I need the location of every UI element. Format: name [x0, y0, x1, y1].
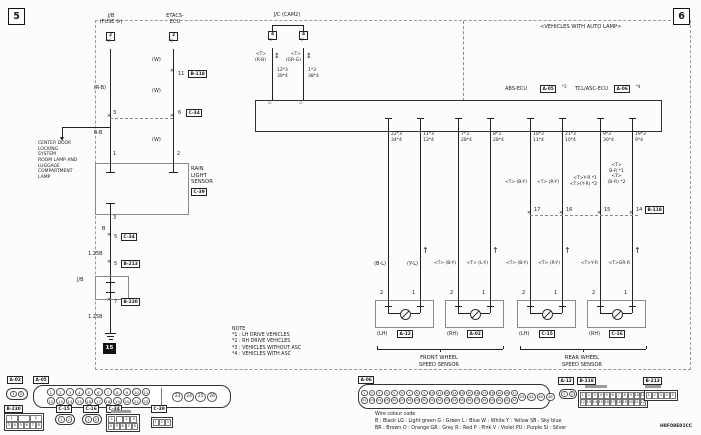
terminal [106, 292, 115, 293]
sensor-position: (RH) [589, 331, 600, 337]
pin: 17 [610, 399, 616, 406]
wire [110, 49, 111, 163]
pin: 29 [414, 397, 421, 404]
junction-pin: 5 [114, 234, 117, 240]
terminal [106, 282, 115, 283]
branch-destination: CENTER DOOR LOCKING SYSTEM ROOM LAMP AND… [38, 141, 92, 180]
terminal [600, 118, 601, 130]
pin-rows: 1234567891011 1213141516171819202122 [47, 388, 151, 405]
legend-line-1: B : Black LG : Light green G : Green L :… [375, 419, 561, 425]
pin: 3 [66, 388, 75, 396]
wire-color-label: (W) [152, 88, 161, 94]
terminal [420, 300, 421, 313]
pin: 20 [504, 390, 511, 397]
pin: 12 [47, 397, 56, 405]
terminal [530, 300, 531, 313]
junction-mark: ✕ [107, 299, 111, 304]
pin-row: 345678 [6, 422, 42, 429]
pin: 6 [399, 390, 406, 397]
pin-row: 1213141516171819202122 [580, 399, 646, 406]
connector-c34: 123 45678 [106, 414, 140, 432]
junction-mark: ✕ [559, 212, 563, 217]
pin: 11 [142, 388, 151, 396]
wire-color-label: <T> B-R *1 <T> (B-R) *2 [603, 163, 630, 186]
pin: 22 [142, 397, 151, 405]
connector-triangle-icon: ▽ [170, 40, 173, 45]
pin: 15 [466, 390, 473, 397]
footnote-ref: *3 [562, 84, 567, 89]
wire-color-label: R-B [94, 130, 102, 136]
junction-pin: 17 [534, 207, 540, 213]
pin: 19 [622, 399, 628, 406]
pin: 6 [94, 388, 103, 396]
rear-sensor-group-label: REAR WHEEL SPEED SENSOR [548, 355, 616, 368]
pin: 17 [481, 390, 488, 397]
ecu-pin-numbers: 9*3 30*4 [603, 132, 614, 143]
connector-label: C-16 [83, 405, 99, 413]
ground-icon [105, 333, 116, 334]
abs-ecu-label: ABS-ECU [505, 86, 527, 92]
connector-color-mark [111, 410, 131, 413]
pin: 1 [58, 416, 65, 423]
wire [490, 130, 491, 300]
arrow-up-icon: ↑ [422, 247, 429, 255]
pin: 33 [444, 397, 451, 404]
pin: 30 [421, 397, 428, 404]
coil-icon [400, 309, 411, 320]
connector-a12: 12 [559, 389, 577, 399]
wire-color-label: (W) [152, 137, 161, 143]
pin: 3 [165, 419, 171, 426]
ecu-pin-numbers: 21*3 10*4 [565, 132, 576, 143]
ground-icon [109, 339, 113, 340]
branch-wire [62, 127, 63, 137]
pin [116, 416, 123, 423]
wire-color-label: <T> (B-Y) [496, 180, 527, 186]
pin: 26 [207, 392, 218, 402]
pin: 20 [123, 397, 132, 405]
pin: 37 [474, 397, 481, 404]
wire [272, 48, 273, 100]
pin: 4 [12, 422, 18, 429]
pin: 21 [634, 399, 640, 406]
junction-pin: 16 [566, 207, 572, 213]
wire [420, 130, 421, 300]
pin: 1 [646, 392, 652, 399]
pin: 10 [634, 392, 640, 399]
wiring-diagram-sheet: 5 6 <VEHICLES WITH AUTO LAMP> J/B (FUSE … [0, 0, 701, 435]
pin: 14 [66, 397, 75, 405]
wire-color-label: 1.25B [88, 251, 103, 257]
terminal [458, 300, 459, 313]
pin: 12 [444, 390, 451, 397]
connector-divider [161, 388, 162, 405]
pin: 18 [616, 399, 622, 406]
terminal [169, 172, 178, 173]
wire-color-label: <T> (GR-G) [281, 52, 301, 63]
connector-ref: A-05 [540, 85, 556, 93]
terminal [458, 118, 459, 130]
terminal [562, 118, 563, 130]
pin: 11 [436, 390, 443, 397]
pin: 19 [496, 390, 503, 397]
connector-ref: B-118 [188, 70, 207, 78]
wire-color-label: <T>Y-R *1 <T>(Y-R) *2 [560, 176, 597, 187]
junction-mark: ✕ [170, 115, 174, 120]
pin: 34 [451, 397, 458, 404]
group-brace [440, 349, 441, 352]
pin: 24 [184, 392, 195, 402]
terminal [490, 300, 491, 313]
connector-c16: 12 [82, 414, 102, 425]
junction-pin: 14 [636, 207, 642, 213]
arrow-updown-icon: ↕ [274, 53, 280, 60]
pin: 4 [664, 392, 670, 399]
pin: 5 [18, 422, 24, 429]
pin: 44 [527, 393, 536, 401]
pin: 24 [376, 397, 383, 404]
connector-label: C-39 [151, 405, 167, 413]
pin: 1 [561, 391, 568, 398]
pin: 19 [113, 397, 122, 405]
connector-triangle-icon: ▽ [269, 39, 272, 44]
pin: 4 [598, 392, 604, 399]
pin: 10 [132, 388, 141, 396]
dashed-link [530, 215, 638, 216]
sensor-pin: 1 [113, 151, 116, 157]
pin: 23 [172, 392, 183, 402]
ecu-pin-numbers: 8*3 28*4 [493, 132, 504, 143]
pin: 13 [56, 397, 65, 405]
terminal [562, 300, 563, 313]
terminal [110, 163, 111, 172]
pin: 7 [30, 422, 36, 429]
pin: 3 [658, 392, 664, 399]
junction-pin: 15 [604, 207, 610, 213]
wire-color-label: (B-L) [352, 261, 386, 267]
pin: 2 [586, 392, 592, 399]
connector-c39: 123 [151, 417, 173, 428]
sensor-pin: 2 [380, 290, 383, 296]
connector-label: A-12 [558, 377, 574, 385]
pin: 16 [474, 390, 481, 397]
pin: 9 [421, 390, 428, 397]
pin-row: 2223242526272829303132333435363738394041… [361, 397, 518, 404]
wire-color-label: <T> (L-Y) [454, 261, 488, 267]
pin: 2 [123, 416, 130, 423]
junction-pin: 7 [114, 299, 117, 305]
ecu-pin-numbers: 11*3 13*4 [423, 132, 434, 143]
pin: 22 [361, 397, 368, 404]
wire-color-label: (R-B) [82, 85, 106, 91]
sensor-pin: 2 [522, 290, 525, 296]
pin: 5 [114, 423, 120, 430]
terminal [420, 118, 421, 130]
note-block: NOTE *1 : LH DRIVE VEHICLES *2 : RH DRIV… [232, 327, 301, 358]
etacs-title: ETACS- ECU [160, 13, 190, 26]
pin: 31 [429, 397, 436, 404]
pin: 2 [30, 415, 42, 422]
connector-label: A-02 [7, 376, 23, 384]
wire-color-label: <T> (B-Y) [422, 261, 456, 267]
terminal [106, 172, 115, 173]
pin: 8 [113, 388, 122, 396]
section-number-left: 5 [8, 8, 25, 25]
pin: 4 [75, 388, 84, 396]
wire [388, 130, 389, 300]
connector-ref: B-230 [121, 298, 140, 306]
ground-icon [107, 336, 114, 337]
junction-pin: 5 [114, 261, 117, 267]
pin: 1 [85, 416, 92, 423]
pin: 13 [586, 399, 592, 406]
ecu-pin-numbers: 22*3 34*4 [391, 132, 402, 143]
sheet-code: H8F08E01CC [660, 424, 692, 430]
connector-a06: 123456789101112131415161718192021 222324… [358, 384, 550, 409]
connector-ref: C-39 [191, 188, 207, 196]
pin: 15 [75, 397, 84, 405]
sensor-pin: 1 [412, 290, 415, 296]
connector-c15: 12 [55, 414, 75, 425]
pin: 1 [108, 416, 115, 423]
dashed-link [110, 118, 173, 119]
pin: 5 [85, 388, 94, 396]
pin: 8 [622, 392, 628, 399]
pin: 2 [159, 419, 165, 426]
pin: 6 [610, 392, 616, 399]
legend-line-2: BR : Brown O : Orange GR : Grey R : Red … [375, 426, 566, 432]
pin: 8 [36, 422, 42, 429]
connector-ref: A-02 [467, 330, 483, 338]
wire-color-label: <T> (R-Y) [526, 261, 560, 267]
pin: 7 [104, 388, 113, 396]
sensor-pin: 2 [450, 290, 453, 296]
sensor-pin: 2 [177, 151, 180, 157]
terminal [388, 300, 389, 313]
wire [173, 49, 174, 163]
pin: 35 [459, 397, 466, 404]
pin: 2 [569, 391, 576, 398]
junction-block-label: J/B [77, 277, 84, 283]
pin: 16 [604, 399, 610, 406]
wire-color-label: 1.25B [88, 314, 103, 320]
connector-b213: 12345 [644, 390, 678, 401]
pin-row: 123 [108, 416, 137, 423]
pin-row: 43444546 [518, 393, 555, 401]
pin: 3 [376, 390, 383, 397]
pin-row: 123 [153, 419, 171, 426]
pin: 9 [628, 392, 634, 399]
connector-ref: C-15 [539, 330, 555, 338]
pin: 39 [489, 397, 496, 404]
pin: 2 [66, 416, 73, 423]
pin: 14 [592, 399, 598, 406]
pin: 21 [132, 397, 141, 405]
pin: 5 [604, 392, 610, 399]
connector-ref: B-213 [121, 260, 140, 268]
pin: 3 [130, 416, 137, 423]
arrow-up-icon: ↑ [634, 247, 641, 255]
pin: 32 [436, 397, 443, 404]
ground-point-number: 15 [103, 343, 116, 354]
coil-icon [470, 309, 481, 320]
arrow-updown-icon: ↕ [306, 53, 312, 60]
ecu-pin-numbers: 7*3 28*4 [461, 132, 472, 143]
pin-row: 23242526 [172, 392, 217, 402]
connector-ref: B-118 [645, 206, 664, 214]
terminal [110, 203, 111, 213]
pin: 1 [10, 391, 17, 398]
pin: 3 [592, 392, 598, 399]
ecu-pin-numbers: 10*3 11*4 [533, 132, 544, 143]
terminal [173, 163, 174, 172]
pin: 2 [56, 388, 65, 396]
sensor-position: (RH) [447, 331, 458, 337]
pin: 4 [108, 423, 114, 430]
pin: 46 [546, 393, 555, 401]
wire [303, 48, 304, 100]
sensor-position: (LH) [519, 331, 529, 337]
pin: 1 [361, 390, 368, 397]
pin: 9 [123, 388, 132, 396]
pin: 27 [399, 397, 406, 404]
wire-color-label: (W) [152, 57, 161, 63]
wire [458, 130, 459, 300]
connector-b118: 1234567891011 1213141516171819202122 [578, 390, 648, 408]
pin: 23 [369, 397, 376, 404]
connector-ref: A-06 [614, 85, 630, 93]
pin: 38 [481, 397, 488, 404]
junction-mark: ✕ [629, 212, 633, 217]
jc-title: J/C (CAM2) [256, 12, 318, 18]
pin [18, 415, 30, 422]
pin: 18 [489, 390, 496, 397]
arrow-up-icon: ↑ [492, 247, 499, 255]
wire-color-label: <T> (R-Y) [528, 180, 559, 186]
pin: 26 [391, 397, 398, 404]
group-brace [520, 346, 521, 349]
junction-pin: 3 [113, 110, 116, 116]
wire-color-label: <T>Y-R [564, 261, 598, 267]
pin: 3 [6, 422, 12, 429]
arrow-up-icon: ↑ [564, 247, 571, 255]
wire-color-label: (Y-L) [384, 261, 418, 267]
pin: 12 [580, 399, 586, 406]
ecu-pin-numbers: 1*3 38*4 [308, 68, 319, 79]
pin: 8 [132, 423, 138, 430]
connector-ref: C-34 [121, 233, 137, 241]
pin: 28 [406, 397, 413, 404]
terminal [632, 300, 633, 313]
sensor-pin: 1 [482, 290, 485, 296]
terminal [530, 118, 531, 130]
sensor-pin: 1 [554, 290, 557, 296]
junction-mark: ✕ [170, 70, 174, 75]
coil-icon [612, 309, 623, 320]
pin: 2 [93, 416, 100, 423]
pin: 14 [459, 390, 466, 397]
junction-pin: 11 [178, 71, 184, 77]
sensor-pin: 2 [592, 290, 595, 296]
pin: 1 [6, 415, 18, 422]
sensor-pin: 3 [113, 215, 116, 221]
pin: 41 [504, 397, 511, 404]
pin: 15 [598, 399, 604, 406]
pin: 1 [47, 388, 56, 396]
pin: 16 [85, 397, 94, 405]
sensor-pin: 1 [624, 290, 627, 296]
connector-ref: C-34 [186, 109, 202, 117]
auto-lamp-divider [463, 21, 464, 101]
connector-color-mark [645, 385, 661, 388]
pin: 6 [24, 422, 30, 429]
ecu-pin-numbers: 19*3 9*4 [635, 132, 646, 143]
jb-title: J/B (FUSE ⑩) [94, 13, 128, 26]
front-sensor-group-label: FRONT WHEEL SPEED SENSOR [405, 355, 473, 368]
pin: 7 [406, 390, 413, 397]
wire [110, 213, 111, 333]
pin: 8 [414, 390, 421, 397]
connector-ref: C-16 [609, 330, 625, 338]
wire-color-label: <T> (R-B) [240, 52, 266, 63]
terminal [490, 118, 491, 130]
junction-mark: ✕ [107, 261, 111, 266]
terminal [632, 118, 633, 130]
rain-light-sensor-label: RAIN LIGHT SENSOR [191, 166, 213, 186]
pin-row: 1234567891011 [580, 392, 646, 399]
group-brace [503, 346, 504, 349]
connector-triangle-icon: ▽ [107, 40, 110, 45]
connector-b230: 12 345678 [4, 413, 44, 431]
pin: 4 [384, 390, 391, 397]
ecu-pin-numbers: 12*3 39*4 [277, 68, 288, 79]
terminal [600, 300, 601, 313]
group-brace [377, 346, 378, 349]
group-brace [646, 346, 647, 349]
branch-wire [62, 127, 110, 128]
wire-color-label: <T> (B-Y) [494, 261, 528, 267]
pin: 18 [104, 397, 113, 405]
pin: 20 [628, 399, 634, 406]
group-brace [583, 349, 584, 352]
pin-row: 1213141516171819202122 [47, 397, 151, 405]
pin: 2 [369, 390, 376, 397]
footnote-ref: *4 [636, 84, 641, 89]
junction-pin: 6 [178, 110, 181, 116]
wire-color-label: B [102, 226, 105, 232]
pin: 25 [384, 397, 391, 404]
pin: 7 [616, 392, 622, 399]
connector-a02: 12 [6, 388, 28, 400]
connector-label: C-15 [56, 405, 72, 413]
pin: 40 [496, 397, 503, 404]
junction-mark: ✕ [597, 212, 601, 217]
tcl-asc-ecu-label: TCL/ASC-ECU [575, 86, 608, 92]
auto-lamp-note: <VEHICLES WITH AUTO LAMP> [540, 24, 690, 31]
pin: 5 [670, 392, 676, 399]
terminal [388, 118, 389, 130]
pin-row: 1234567891011 [47, 388, 151, 396]
connector-color-mark [585, 385, 607, 388]
pin: 2 [18, 391, 25, 398]
pin-row: 12 [6, 415, 42, 422]
pin: 43 [518, 393, 527, 401]
pin: 10 [429, 390, 436, 397]
pin-rows: 123456789101112131415161718192021 222324… [361, 390, 518, 404]
pin-row: 123456789101112131415161718192021 [361, 390, 518, 397]
pin: 1 [580, 392, 586, 399]
pin: 2 [652, 392, 658, 399]
